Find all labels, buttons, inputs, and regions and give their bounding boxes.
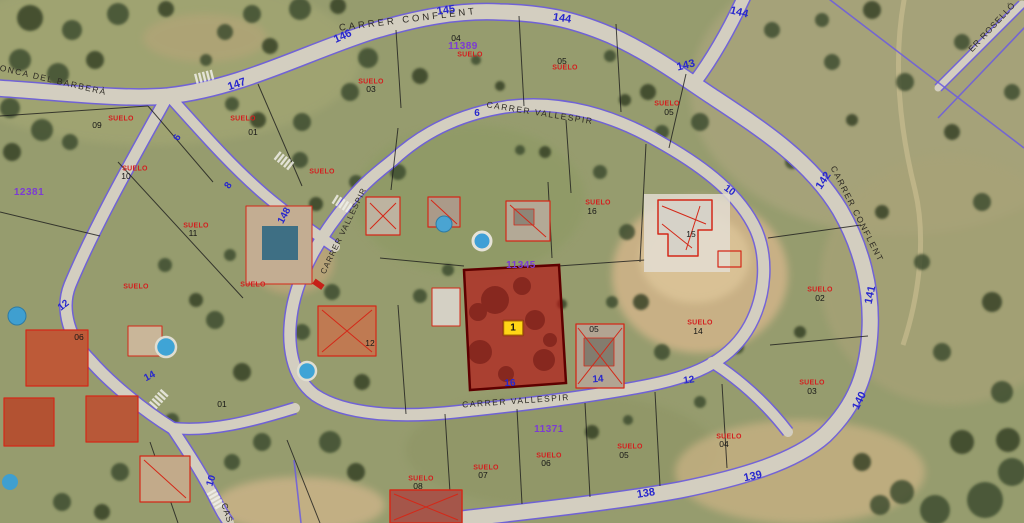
selected-parcel-badge[interactable]: 1	[503, 321, 523, 336]
aerial-map[interactable]: CARRER CONFLENTR CONCA DEL BARBERÀCARRER…	[0, 0, 1024, 523]
map-graphics	[0, 0, 1024, 523]
